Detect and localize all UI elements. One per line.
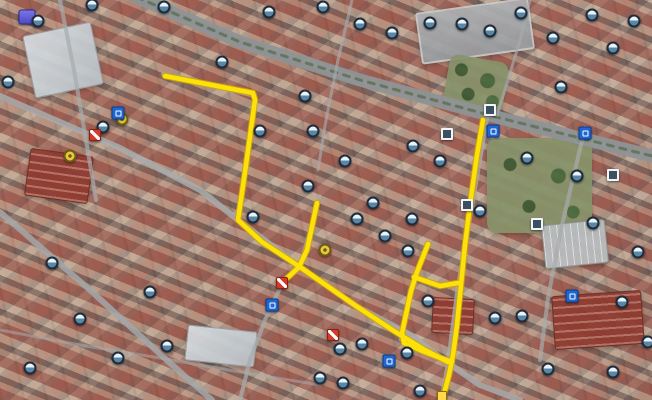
photo-circle-icon[interactable] (379, 230, 392, 243)
square-photo-icon[interactable] (484, 104, 496, 116)
photo-circle-icon[interactable] (521, 152, 534, 165)
photo-circle-icon[interactable] (86, 0, 99, 12)
photo-circle-icon[interactable] (434, 155, 447, 168)
photo-circle-icon[interactable] (161, 340, 174, 353)
square-photo-icon[interactable] (441, 128, 453, 140)
photo-circle-icon[interactable] (386, 27, 399, 40)
photo-circle-icon[interactable] (515, 7, 528, 20)
square-photo-icon[interactable] (461, 199, 473, 211)
satellite-map[interactable] (0, 0, 652, 400)
photo-circle-icon[interactable] (112, 352, 125, 365)
photo-circle-icon[interactable] (74, 313, 87, 326)
photo-circle-icon[interactable] (314, 372, 327, 385)
photo-circle-icon[interactable] (307, 125, 320, 138)
photo-circle-icon[interactable] (356, 338, 369, 351)
photo-circle-icon[interactable] (216, 56, 229, 69)
yellow-circle-icon[interactable] (64, 150, 77, 163)
photo-circle-icon[interactable] (616, 296, 629, 309)
photo-circle-icon[interactable] (422, 295, 435, 308)
photo-circle-icon[interactable] (571, 170, 584, 183)
photo-circle-icon[interactable] (401, 347, 414, 360)
photo-circle-icon[interactable] (407, 140, 420, 153)
transit-blue-icon[interactable] (487, 125, 500, 138)
transit-blue-icon[interactable] (383, 355, 396, 368)
photo-circle-icon[interactable] (414, 385, 427, 398)
photo-circle-icon[interactable] (547, 32, 560, 45)
square-photo-icon[interactable] (607, 169, 619, 181)
photo-circle-icon[interactable] (337, 377, 350, 390)
transit-blue-icon[interactable] (566, 290, 579, 303)
photo-circle-icon[interactable] (317, 1, 330, 14)
photo-circle-icon[interactable] (607, 366, 620, 379)
photo-circle-icon[interactable] (628, 15, 641, 28)
photo-circle-icon[interactable] (24, 362, 37, 375)
photo-circle-icon[interactable] (516, 310, 529, 323)
photo-circle-icon[interactable] (474, 205, 487, 218)
photo-circle-icon[interactable] (302, 180, 315, 193)
photo-circle-icon[interactable] (542, 363, 555, 376)
red-marker-icon[interactable] (327, 329, 339, 341)
photo-circle-icon[interactable] (32, 15, 45, 28)
photo-circle-icon[interactable] (158, 1, 171, 14)
photo-circle-icon[interactable] (484, 25, 497, 38)
yellow-circle-icon[interactable] (319, 244, 332, 257)
photo-circle-icon[interactable] (334, 343, 347, 356)
red-marker-icon[interactable] (276, 277, 288, 289)
transit-blue-icon[interactable] (266, 299, 279, 312)
photo-circle-icon[interactable] (299, 90, 312, 103)
square-photo-icon[interactable] (531, 218, 543, 230)
photo-circle-icon[interactable] (402, 245, 415, 258)
photo-circle-icon[interactable] (144, 286, 157, 299)
photo-circle-icon[interactable] (642, 336, 652, 349)
photo-circle-icon[interactable] (351, 213, 364, 226)
photo-circle-icon[interactable] (555, 81, 568, 94)
photo-circle-icon[interactable] (254, 125, 267, 138)
transit-blue-icon[interactable] (112, 107, 125, 120)
photo-circle-icon[interactable] (587, 217, 600, 230)
photo-circle-icon[interactable] (406, 213, 419, 226)
photo-circle-icon[interactable] (263, 6, 276, 19)
yellow-square-icon[interactable] (437, 391, 447, 400)
photo-circle-icon[interactable] (632, 246, 645, 259)
photo-circle-icon[interactable] (354, 18, 367, 31)
photo-circle-icon[interactable] (367, 197, 380, 210)
photo-circle-icon[interactable] (46, 257, 59, 270)
photo-circle-icon[interactable] (456, 18, 469, 31)
photo-circle-icon[interactable] (424, 17, 437, 30)
photo-circle-icon[interactable] (607, 42, 620, 55)
photo-circle-icon[interactable] (247, 211, 260, 224)
photo-circle-icon[interactable] (2, 76, 15, 89)
photo-circle-icon[interactable] (586, 9, 599, 22)
photo-circle-icon[interactable] (339, 155, 352, 168)
red-marker-icon[interactable] (89, 129, 101, 141)
photo-circle-icon[interactable] (489, 312, 502, 325)
icon-layer (0, 0, 652, 400)
transit-blue-icon[interactable] (579, 127, 592, 140)
